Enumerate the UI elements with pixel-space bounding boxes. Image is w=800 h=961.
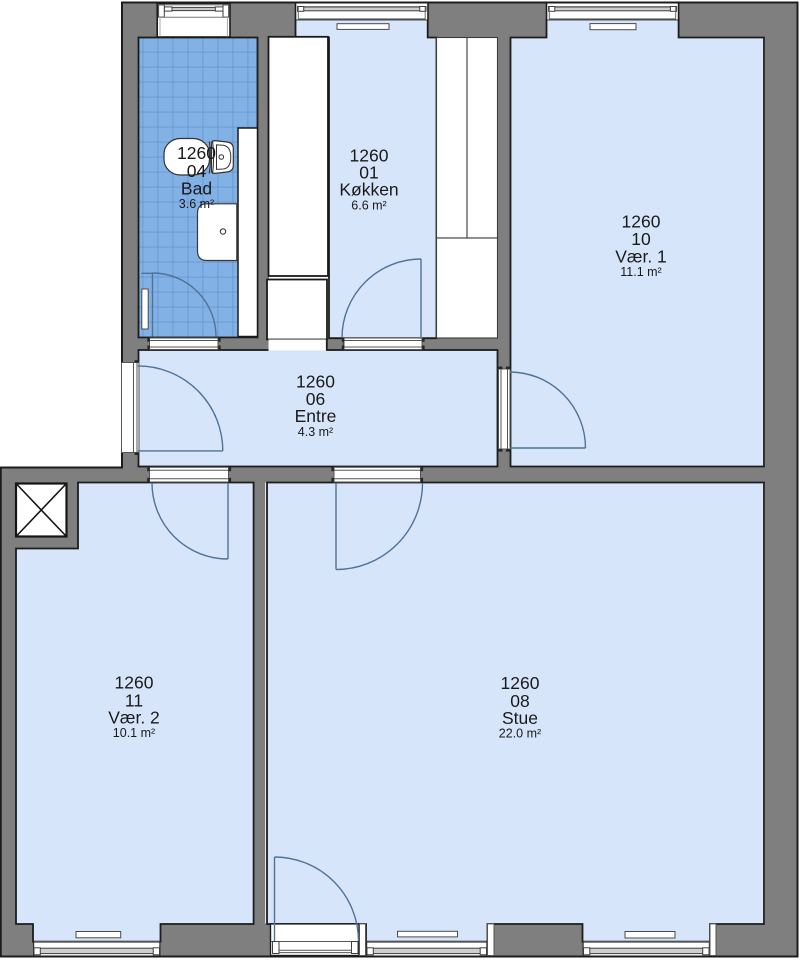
svg-text:Køkken: Køkken	[339, 180, 398, 200]
svg-text:Bad: Bad	[181, 179, 212, 199]
svg-text:1260: 1260	[501, 673, 540, 693]
svg-text:22.0 m²: 22.0 m²	[499, 727, 541, 741]
svg-text:3.6 m²: 3.6 m²	[179, 197, 214, 211]
svg-text:1260: 1260	[177, 143, 216, 163]
svg-text:1260: 1260	[115, 673, 154, 693]
svg-text:6.6 m²: 6.6 m²	[351, 199, 386, 213]
svg-text:4.3 m²: 4.3 m²	[298, 425, 333, 439]
svg-text:11.1 m²: 11.1 m²	[620, 265, 661, 279]
svg-text:Vær. 1: Vær. 1	[615, 247, 667, 267]
svg-text:Vær. 2: Vær. 2	[108, 708, 160, 728]
svg-text:10.1 m²: 10.1 m²	[113, 726, 155, 740]
svg-text:Entre: Entre	[295, 406, 337, 426]
svg-text:Stue: Stue	[502, 708, 538, 728]
